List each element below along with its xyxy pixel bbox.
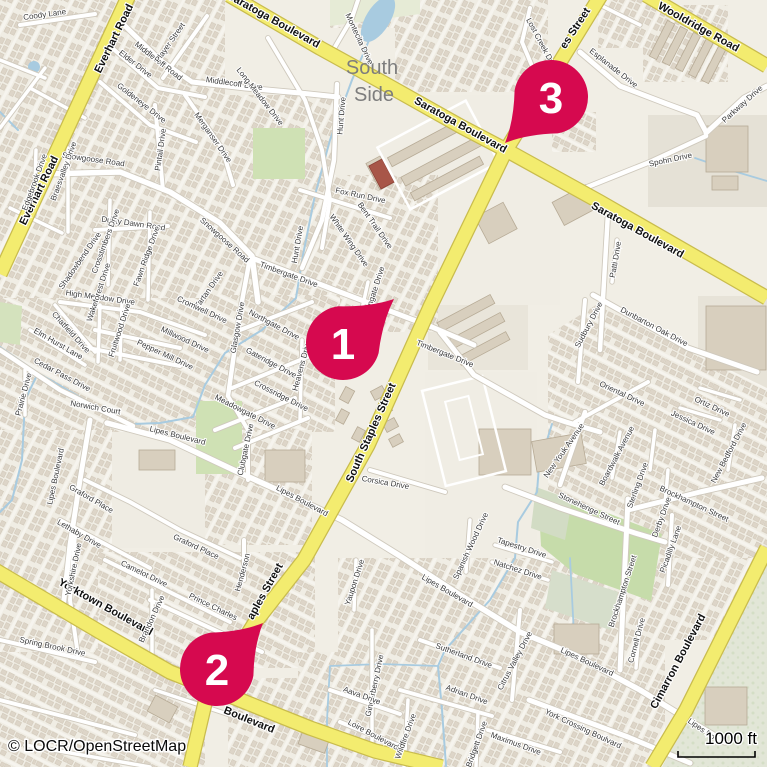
svg-text:Side: Side xyxy=(354,84,394,106)
svg-text:1000 ft: 1000 ft xyxy=(705,729,757,748)
svg-text:2: 2 xyxy=(205,646,229,695)
svg-text:3: 3 xyxy=(539,74,563,123)
svg-text:1: 1 xyxy=(331,320,355,369)
svg-text:© LOCR/OpenStreetMap: © LOCR/OpenStreetMap xyxy=(8,738,186,755)
